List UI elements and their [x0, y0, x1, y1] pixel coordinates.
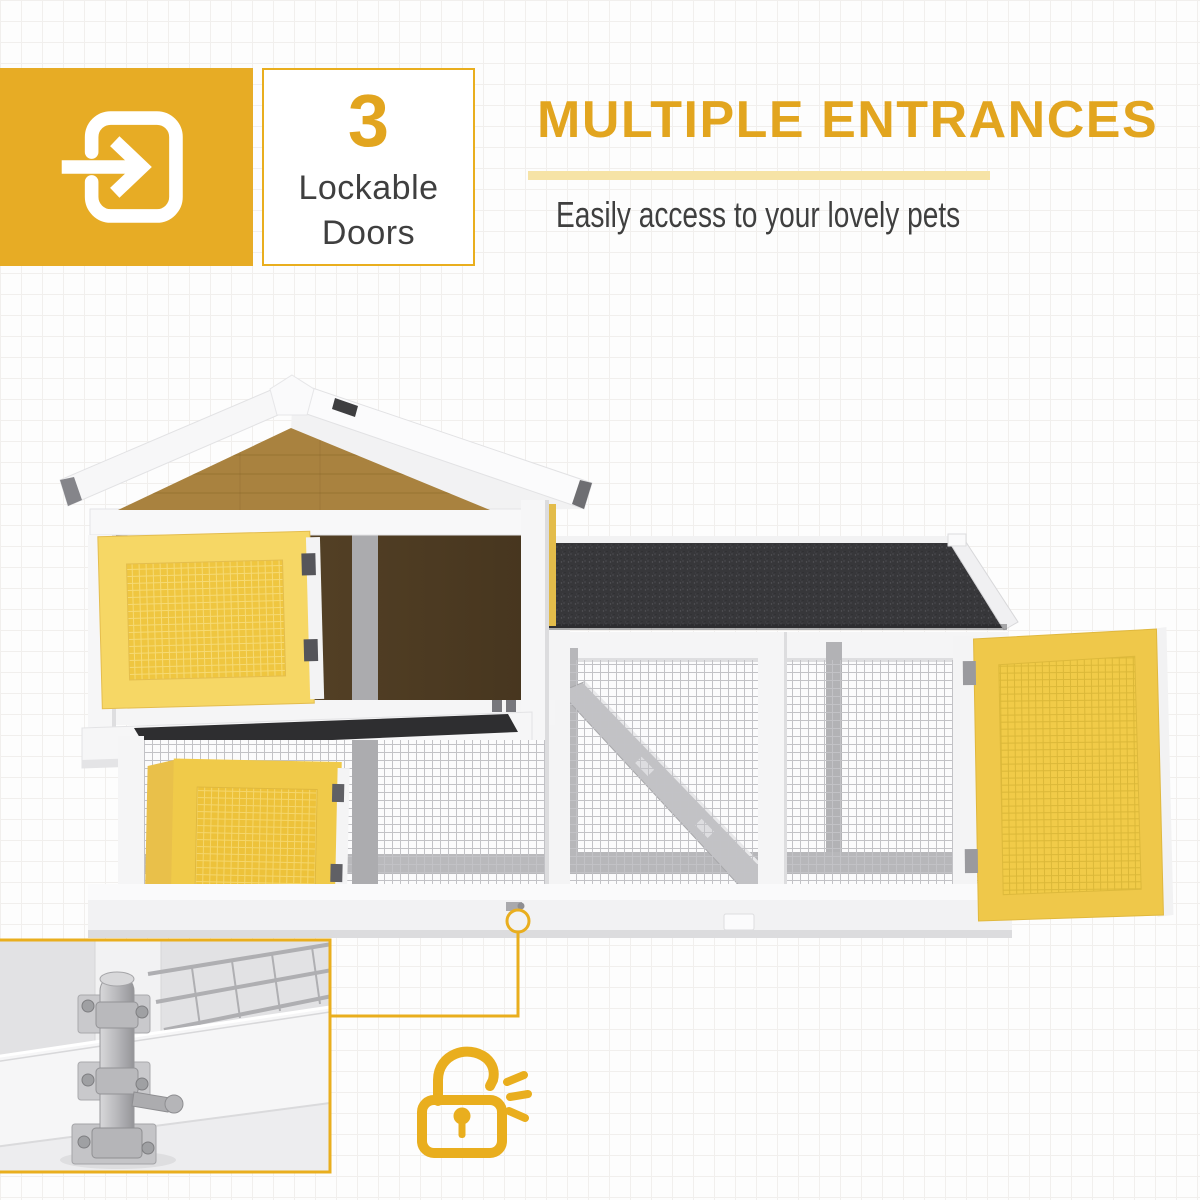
hutch-illustration	[0, 0, 1200, 1200]
latch-inset-photo	[0, 936, 332, 1174]
run-mesh-door	[962, 627, 1173, 921]
door-hinge	[332, 784, 344, 802]
lower-middle-post	[352, 740, 378, 886]
run-corner-post	[548, 628, 570, 890]
click-lines-icon	[507, 1075, 528, 1118]
roof-ridge-cap	[270, 375, 314, 415]
door-hinge	[965, 849, 978, 873]
door-hinge	[330, 864, 342, 882]
frame-tab	[724, 914, 754, 930]
callout-line	[329, 933, 518, 1016]
run-roof-asphalt	[545, 543, 1006, 628]
run-roof	[545, 534, 1018, 630]
house-front-beam	[90, 509, 553, 535]
bottom-frame	[88, 884, 1012, 938]
door-hinge	[301, 553, 316, 575]
house-side-panel	[548, 504, 556, 626]
interior-divider-post	[352, 535, 378, 703]
run-section	[548, 628, 1009, 914]
door-hinge	[963, 661, 976, 685]
marketing-page: 3 Lockable Doors MULTIPLE ENTRANCES Easi…	[0, 0, 1200, 1200]
house-section	[60, 375, 592, 932]
open-padlock-icon	[422, 1052, 528, 1153]
run-door-mesh-window	[999, 656, 1141, 894]
door-hinge	[304, 639, 319, 661]
upper-door-mesh-window	[127, 560, 286, 680]
upper-mesh-door	[98, 531, 324, 709]
run-roof-corner-cap	[948, 534, 966, 546]
lower-left-leg	[118, 736, 144, 886]
run-middle-post	[758, 632, 786, 890]
